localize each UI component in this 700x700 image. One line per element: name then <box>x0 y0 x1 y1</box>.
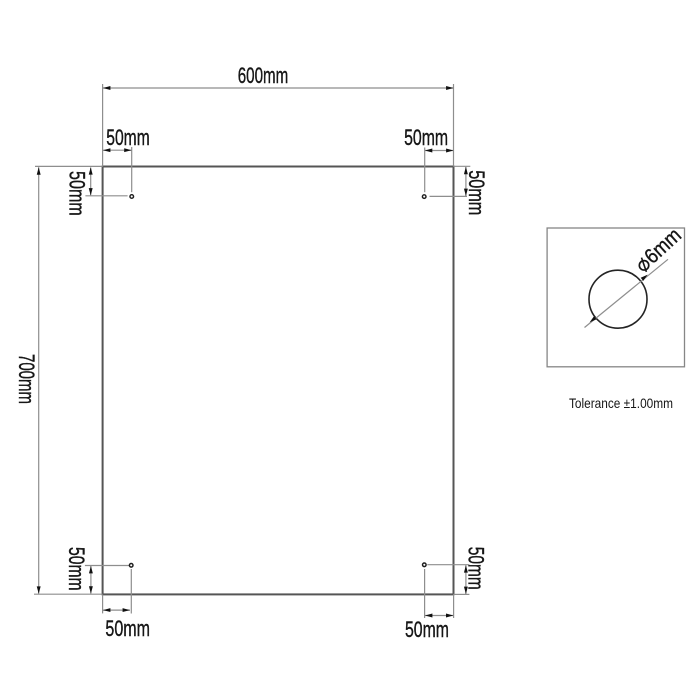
svg-text:50mm: 50mm <box>405 617 449 642</box>
svg-text:Tolerance ±1.00mm: Tolerance ±1.00mm <box>569 396 673 411</box>
svg-text:50mm: 50mm <box>64 547 89 591</box>
svg-text:50mm: 50mm <box>404 125 448 150</box>
svg-text:50mm: 50mm <box>65 171 90 216</box>
svg-text:50mm: 50mm <box>106 125 150 150</box>
svg-text:700mm: 700mm <box>14 354 39 404</box>
svg-text:50mm: 50mm <box>105 616 150 641</box>
svg-text:50mm: 50mm <box>464 170 489 215</box>
svg-text:600mm: 600mm <box>238 63 289 88</box>
svg-text:50mm: 50mm <box>464 547 489 590</box>
